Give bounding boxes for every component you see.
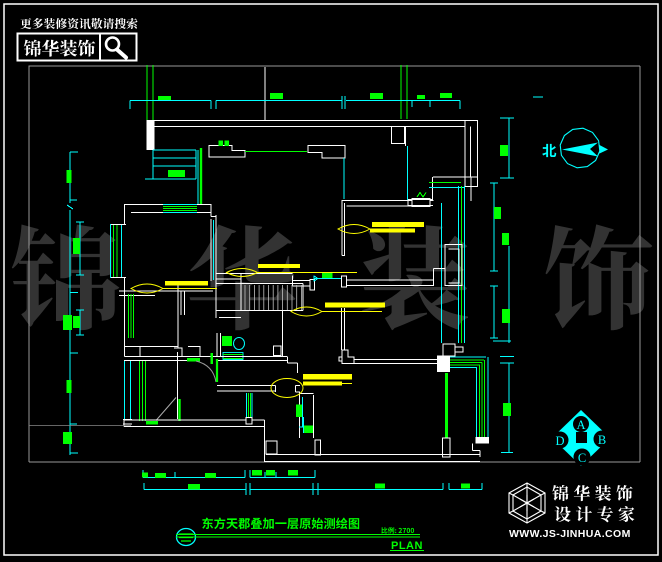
svg-text:WWW.JS-JINHUA.COM: WWW.JS-JINHUA.COM — [509, 528, 631, 540]
svg-text:D: D — [555, 434, 564, 448]
svg-text:A: A — [576, 418, 585, 432]
svg-text:C: C — [578, 451, 586, 465]
svg-text:B: B — [598, 433, 606, 447]
